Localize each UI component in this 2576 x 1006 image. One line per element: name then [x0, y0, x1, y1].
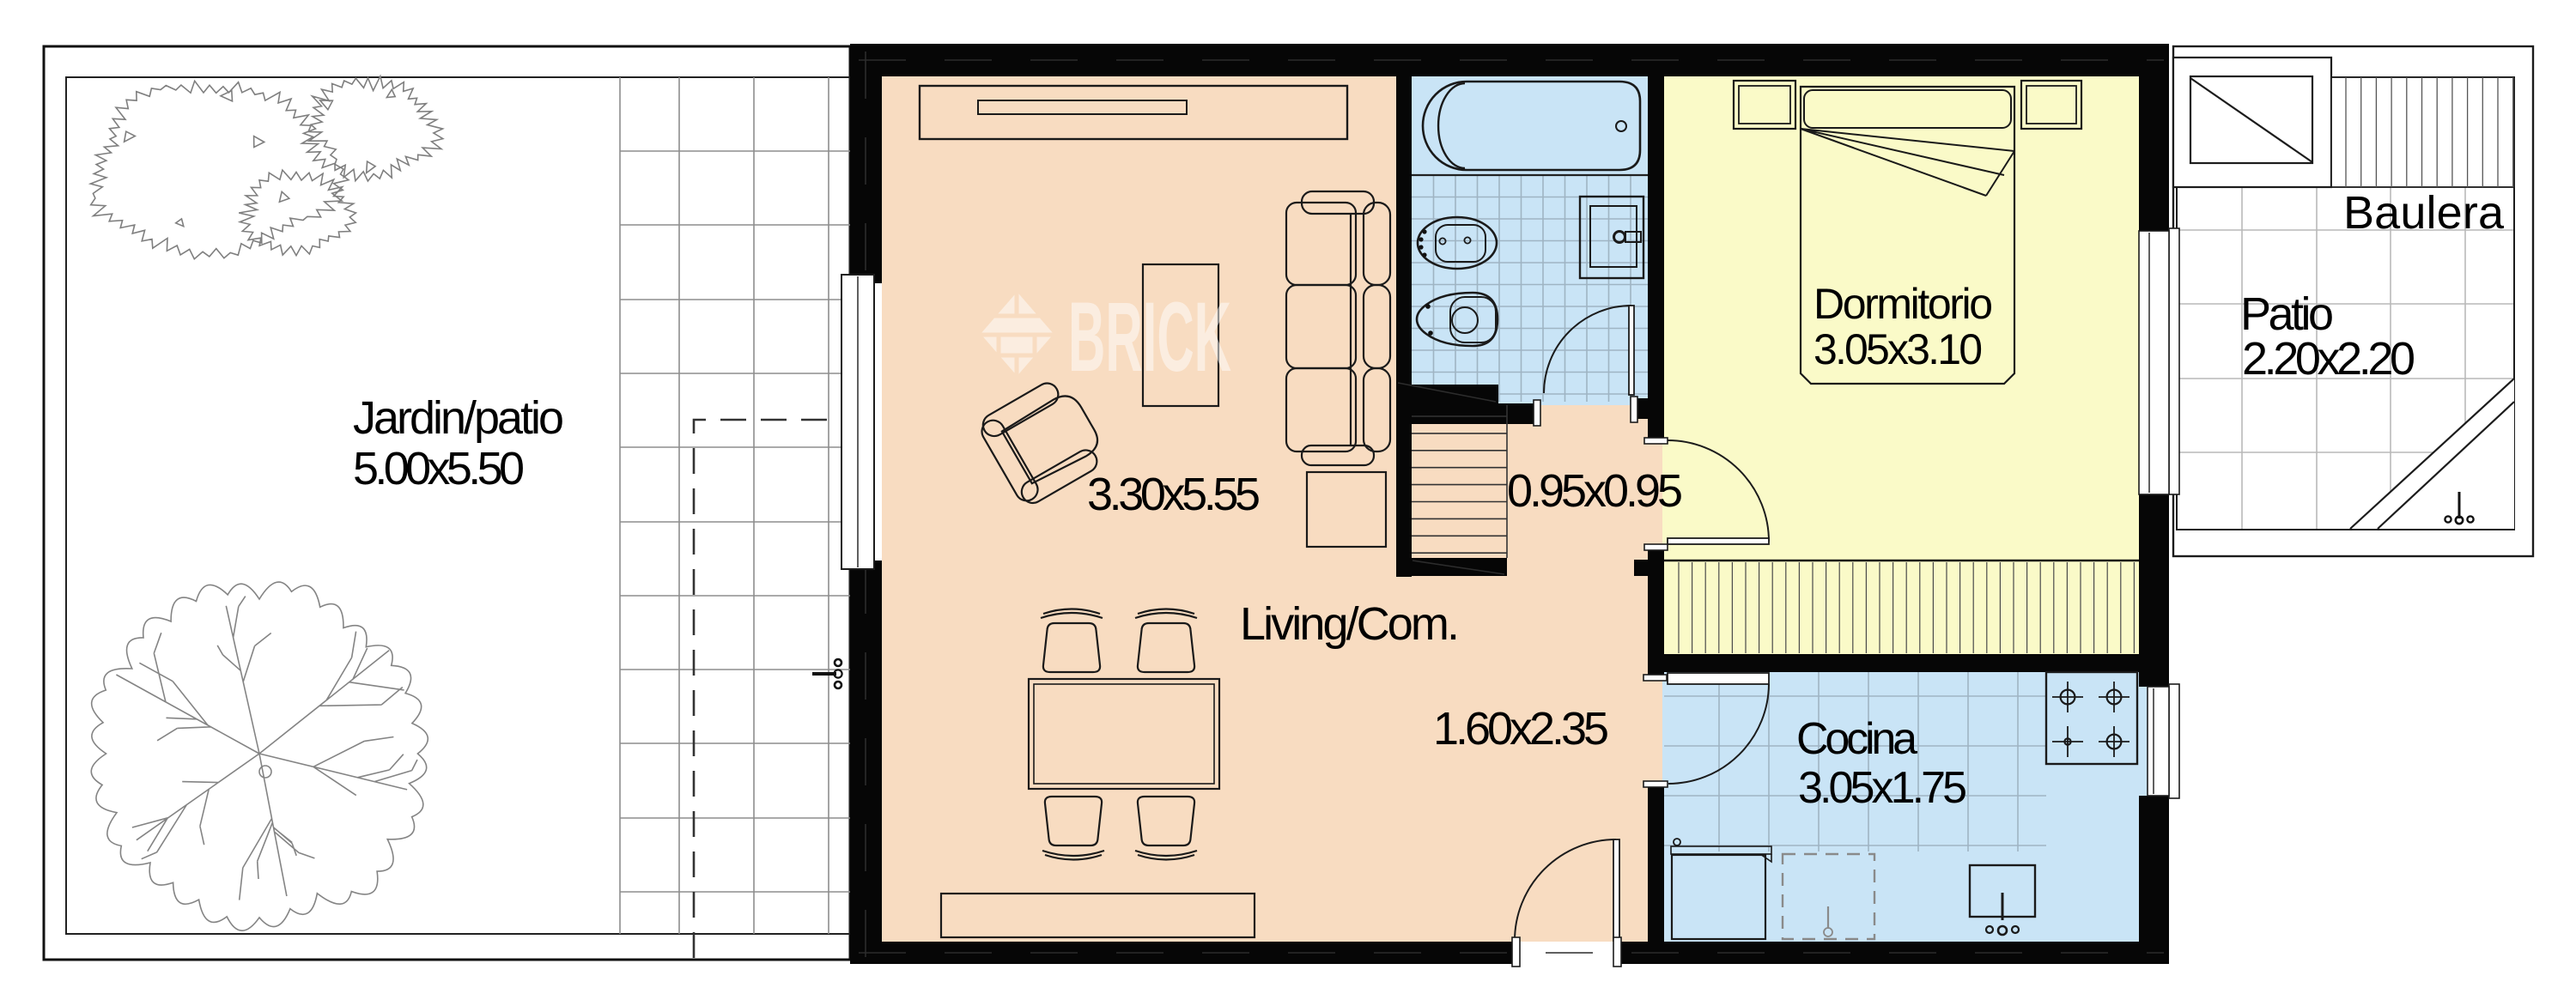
svg-text:2.20x2.20: 2.20x2.20: [2242, 333, 2415, 385]
svg-text:3.30x5.55: 3.30x5.55: [1087, 469, 1261, 520]
svg-text:Living/Com.: Living/Com.: [1240, 598, 1460, 650]
svg-text:Dormitorio: Dormitorio: [1814, 280, 1993, 328]
svg-text:5.00x5.50: 5.00x5.50: [353, 443, 525, 494]
svg-text:1.60x2.35: 1.60x2.35: [1433, 703, 1609, 754]
svg-text:BRICK: BRICK: [1068, 282, 1231, 392]
svg-text:3.05x3.10: 3.05x3.10: [1814, 325, 1983, 373]
svg-text:0.95x0.95: 0.95x0.95: [1507, 465, 1683, 517]
svg-text:3.05x1.75: 3.05x1.75: [1798, 763, 1967, 813]
svg-text:Patio: Patio: [2240, 288, 2334, 340]
svg-text:Cocina: Cocina: [1796, 714, 1917, 764]
svg-text:Jardin/patio: Jardin/patio: [353, 392, 564, 444]
svg-text:Baulera: Baulera: [2343, 187, 2505, 239]
